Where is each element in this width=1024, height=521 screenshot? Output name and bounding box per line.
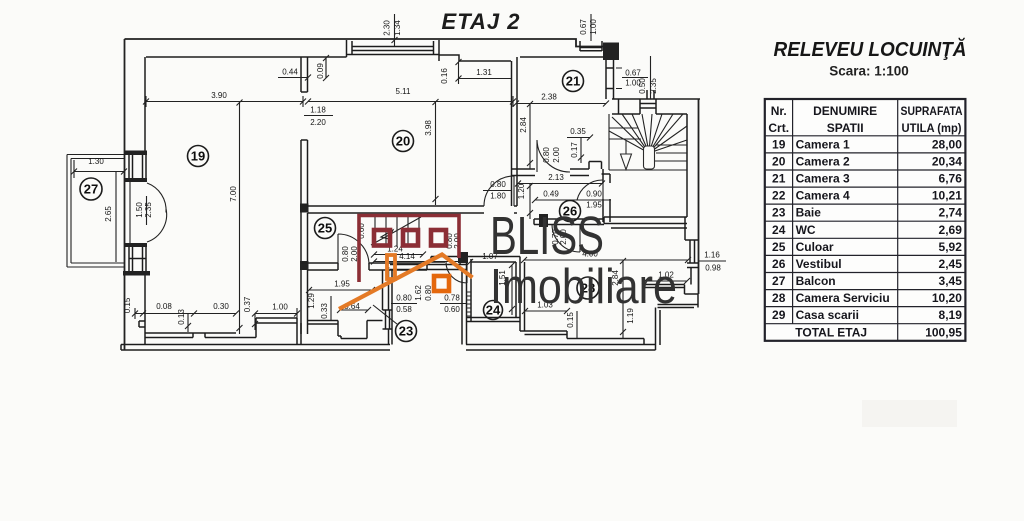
- svg-text:2,69: 2,69: [939, 223, 963, 237]
- svg-text:20,34: 20,34: [932, 155, 962, 169]
- svg-text:0.58: 0.58: [396, 305, 412, 314]
- svg-text:0.35: 0.35: [570, 127, 586, 136]
- svg-text:27: 27: [772, 274, 786, 288]
- svg-text:0.78: 0.78: [444, 294, 460, 303]
- svg-text:21: 21: [566, 74, 580, 89]
- svg-text:25: 25: [318, 221, 332, 236]
- svg-text:0.16: 0.16: [440, 68, 449, 84]
- svg-text:Scara: 1:100: Scara: 1:100: [829, 64, 909, 79]
- svg-text:1.30: 1.30: [88, 157, 104, 166]
- svg-text:1.31: 1.31: [476, 68, 492, 77]
- svg-text:1.62: 1.62: [414, 285, 423, 301]
- svg-text:1.16: 1.16: [704, 251, 720, 260]
- svg-text:2.30: 2.30: [383, 20, 392, 36]
- svg-text:Camera 4: Camera 4: [796, 189, 850, 203]
- svg-text:0.98: 0.98: [705, 264, 721, 273]
- svg-text:2.35: 2.35: [144, 202, 153, 218]
- svg-text:5.11: 5.11: [396, 87, 412, 96]
- svg-text:0.09: 0.09: [316, 63, 325, 79]
- svg-text:Baie: Baie: [796, 206, 822, 220]
- svg-text:0.17: 0.17: [570, 142, 579, 158]
- svg-text:TOTAL ETAJ: TOTAL ETAJ: [795, 325, 867, 339]
- svg-text:4.14: 4.14: [399, 252, 415, 261]
- svg-text:29: 29: [772, 308, 786, 322]
- svg-text:19: 19: [191, 149, 205, 164]
- svg-text:21: 21: [772, 172, 786, 186]
- svg-text:WC: WC: [796, 223, 816, 237]
- svg-text:1.18: 1.18: [310, 106, 326, 115]
- svg-text:1.00: 1.00: [272, 303, 288, 312]
- svg-text:10,20: 10,20: [932, 291, 962, 305]
- svg-text:3.90: 3.90: [211, 91, 227, 100]
- svg-text:2.84: 2.84: [519, 117, 528, 133]
- svg-text:1.95: 1.95: [334, 280, 350, 289]
- svg-text:0.80: 0.80: [396, 294, 412, 303]
- svg-text:6,76: 6,76: [939, 172, 963, 186]
- svg-text:DENUMIRE: DENUMIRE: [813, 104, 877, 118]
- svg-text:0.30: 0.30: [213, 302, 229, 311]
- svg-text:28,00: 28,00: [932, 137, 962, 151]
- svg-text:Camera 2: Camera 2: [796, 155, 850, 169]
- svg-text:2.65: 2.65: [104, 206, 113, 222]
- svg-text:BLISS: BLISS: [490, 206, 604, 266]
- svg-text:Nr.: Nr.: [771, 104, 787, 118]
- svg-text:Culoar: Culoar: [796, 240, 834, 254]
- svg-text:8,19: 8,19: [939, 308, 963, 322]
- svg-text:28: 28: [772, 291, 786, 305]
- svg-text:0.15: 0.15: [123, 297, 132, 313]
- svg-text:0.15: 0.15: [566, 312, 575, 328]
- svg-text:23: 23: [399, 324, 413, 339]
- svg-text:3,45: 3,45: [939, 274, 963, 288]
- svg-text:0.90: 0.90: [586, 190, 602, 199]
- svg-text:RELEVEU LOCUINŢĂ: RELEVEU LOCUINŢĂ: [774, 38, 967, 61]
- svg-text:Crt.: Crt.: [768, 121, 789, 135]
- svg-text:2.20: 2.20: [310, 118, 326, 127]
- svg-text:Casa scarii: Casa scarii: [796, 308, 859, 322]
- svg-text:2.13: 2.13: [548, 173, 564, 182]
- svg-text:0.60: 0.60: [444, 305, 460, 314]
- svg-text:0.13: 0.13: [177, 309, 186, 325]
- svg-text:20: 20: [772, 155, 786, 169]
- svg-text:1.80: 1.80: [490, 192, 506, 201]
- svg-text:0.67: 0.67: [625, 69, 641, 78]
- svg-text:Vestibul: Vestibul: [796, 257, 842, 271]
- svg-text:27: 27: [84, 182, 98, 197]
- svg-text:0.08: 0.08: [156, 302, 172, 311]
- svg-text:UTILA (mp): UTILA (mp): [902, 121, 962, 135]
- svg-text:1.00: 1.00: [589, 19, 598, 35]
- svg-text:Imobiliare: Imobiliare: [490, 260, 677, 314]
- svg-text:20: 20: [396, 134, 410, 149]
- svg-text:ETAJ 2: ETAJ 2: [442, 9, 521, 34]
- svg-text:0.37: 0.37: [243, 296, 252, 312]
- svg-text:1.29: 1.29: [307, 293, 316, 309]
- svg-text:Camera 1: Camera 1: [796, 137, 850, 151]
- svg-text:10,21: 10,21: [932, 189, 962, 203]
- svg-text:5,92: 5,92: [939, 240, 963, 254]
- svg-text:0.67: 0.67: [579, 19, 588, 35]
- svg-text:2.38: 2.38: [541, 93, 557, 102]
- svg-text:Balcon: Balcon: [796, 274, 836, 288]
- svg-text:0.44: 0.44: [282, 68, 298, 77]
- svg-text:7.00: 7.00: [229, 186, 238, 202]
- svg-text:26: 26: [772, 257, 786, 271]
- svg-text:0.50: 0.50: [638, 78, 647, 94]
- svg-text:Camera Serviciu: Camera Serviciu: [796, 291, 890, 305]
- svg-text:1.20: 1.20: [517, 183, 526, 199]
- svg-text:24: 24: [772, 223, 786, 237]
- svg-text:Camera 3: Camera 3: [796, 172, 850, 186]
- svg-text:25: 25: [772, 240, 786, 254]
- svg-text:0.80: 0.80: [341, 246, 350, 262]
- svg-text:0.49: 0.49: [543, 190, 559, 199]
- svg-text:0.33: 0.33: [320, 303, 329, 319]
- svg-text:2,74: 2,74: [939, 206, 963, 220]
- svg-text:3.98: 3.98: [424, 120, 433, 136]
- svg-text:2,45: 2,45: [939, 257, 963, 271]
- svg-text:100,95: 100,95: [925, 325, 962, 339]
- svg-text:2.00: 2.00: [552, 147, 561, 163]
- svg-text:22: 22: [772, 189, 786, 203]
- svg-text:SPATII: SPATII: [827, 121, 864, 135]
- svg-text:19: 19: [772, 137, 786, 151]
- svg-text:0.80: 0.80: [424, 285, 433, 301]
- svg-text:0.80: 0.80: [542, 147, 551, 163]
- svg-text:23: 23: [772, 206, 786, 220]
- svg-text:1.50: 1.50: [135, 202, 144, 218]
- svg-text:SUPRAFATA: SUPRAFATA: [901, 104, 963, 118]
